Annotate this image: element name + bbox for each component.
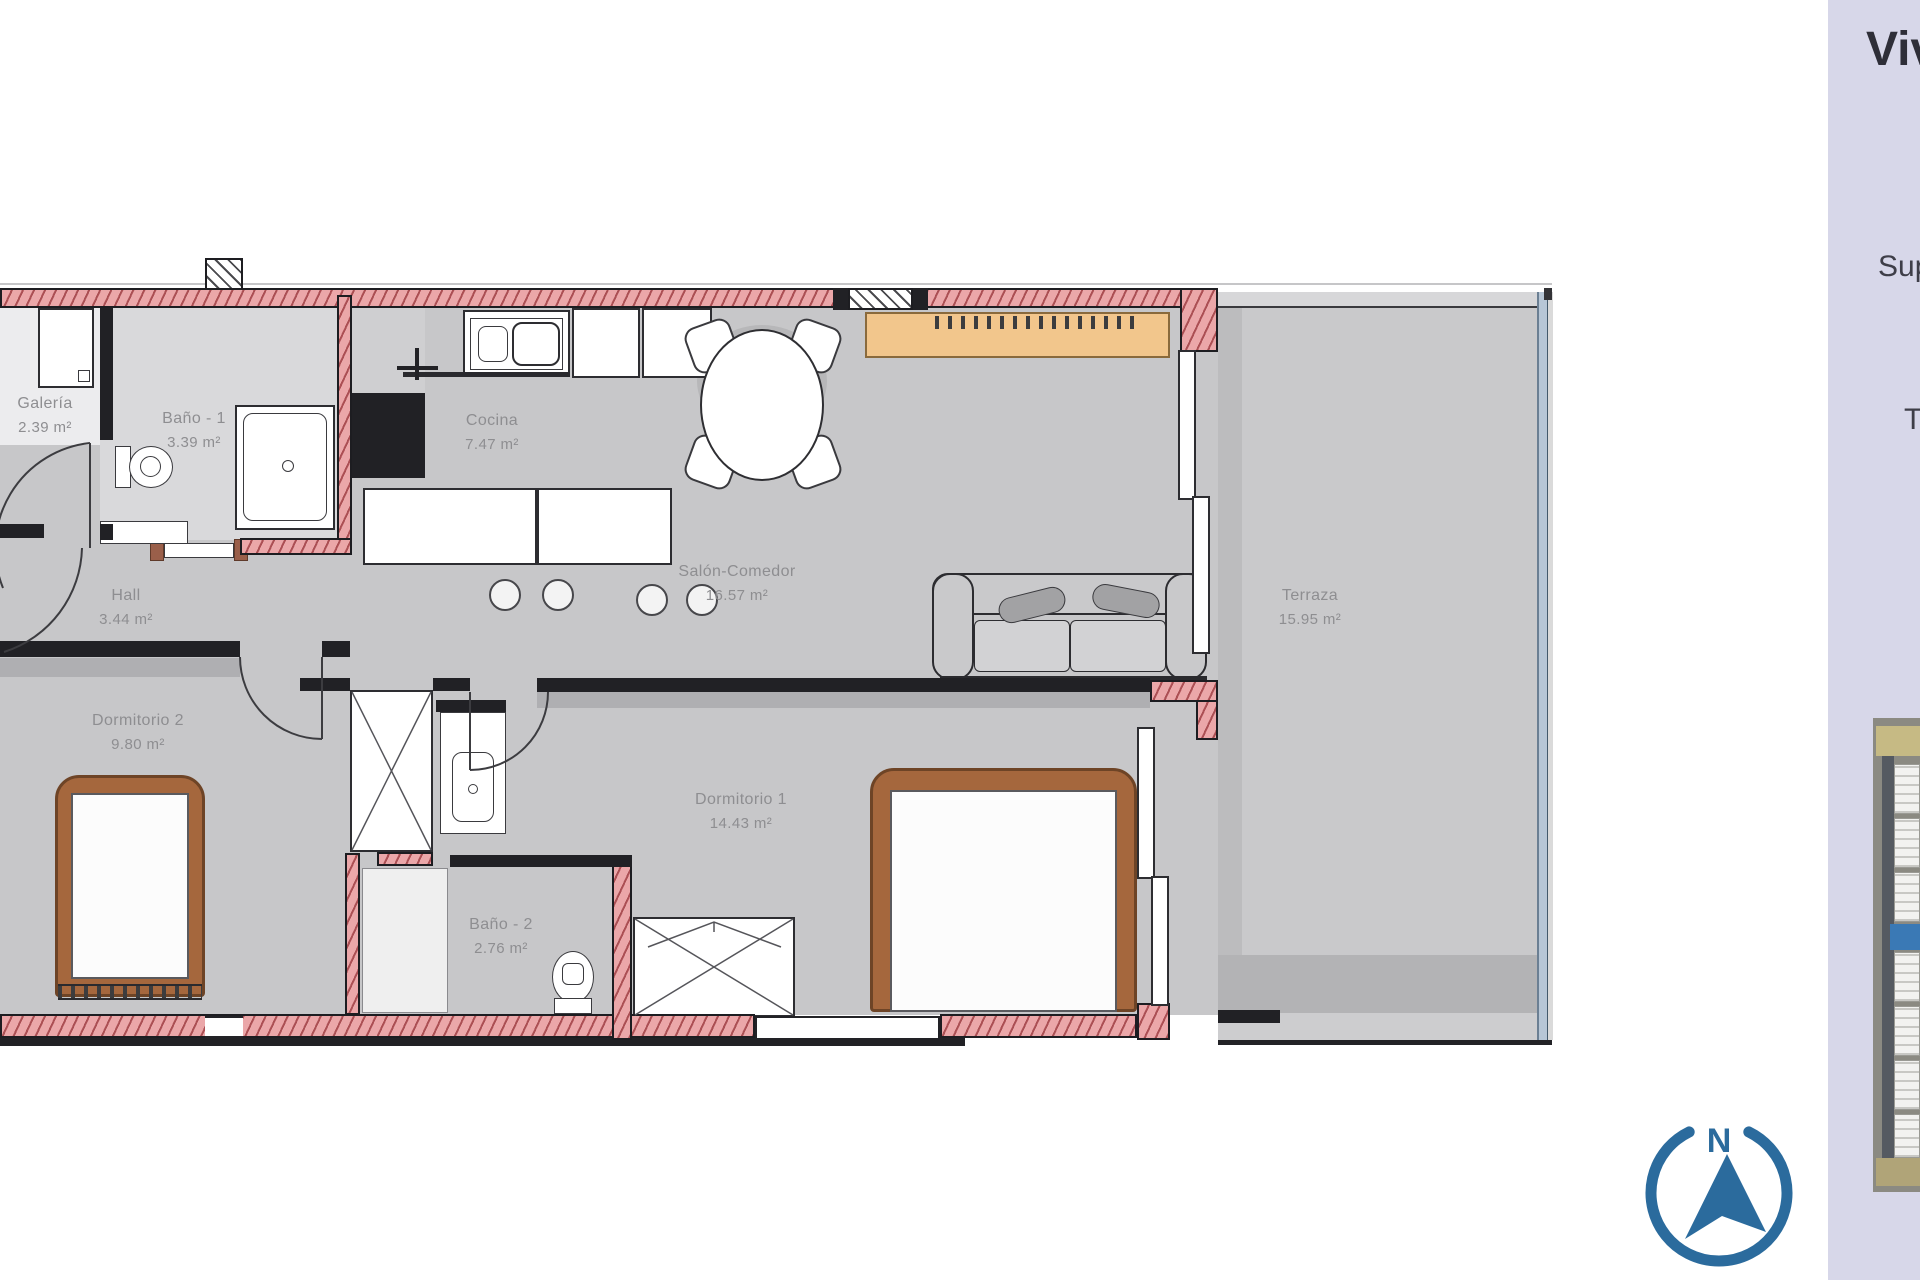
thumb-building-spine [1882, 756, 1894, 1160]
room-name: Dormitorio 2 [92, 712, 184, 729]
room-name: Salón-Comedor [678, 563, 795, 580]
sidebar-title: Viv [1866, 22, 1920, 77]
thumb-unit-5 [1894, 1006, 1920, 1056]
room-name: Terraza [1282, 587, 1338, 604]
room-label-salon: Salón-Comedor 16.57 m² [678, 560, 795, 608]
galeria-door-arc [0, 443, 90, 588]
entry-door-arc [4, 548, 82, 652]
thumb-unit-7 [1894, 1114, 1920, 1158]
room-area: 7.47 m² [465, 433, 519, 457]
plan-linework: N [0, 0, 1920, 1280]
room-name: Baño - 1 [162, 410, 226, 427]
room-name: Cocina [466, 412, 518, 429]
thumb-ground-bottom [1876, 1158, 1920, 1186]
site-plan-thumbnail [1873, 718, 1920, 1192]
room-name: Dormitorio 1 [695, 791, 787, 808]
compass-arrow [1685, 1154, 1766, 1239]
room-name: Hall [111, 587, 140, 604]
sidebar-terraza-label: T [1904, 403, 1920, 437]
room-label-dorm2: Dormitorio 2 9.80 m² [92, 709, 184, 757]
room-area: 16.57 m² [678, 584, 795, 608]
room-label-cocina: Cocina 7.47 m² [465, 409, 519, 457]
room-label-dorm1: Dormitorio 1 14.43 m² [695, 788, 787, 836]
sidebar-panel: Viv Sup T [1828, 0, 1920, 1280]
room-label-bano2: Baño - 2 2.76 m² [469, 913, 533, 961]
thumb-unit-1 [1894, 764, 1920, 814]
wardrobe-dorm1-rail [648, 922, 781, 947]
room-label-hall: Hall 3.44 m² [99, 584, 153, 632]
floor-plan-page: N Galería 2.39 m² Baño - 1 3.39 m² Cocin… [0, 0, 1920, 1280]
room-area: 2.76 m² [469, 937, 533, 961]
room-area: 3.44 m² [99, 608, 153, 632]
room-area: 2.39 m² [17, 416, 72, 440]
dorm1-door-arc [470, 692, 548, 770]
thumb-unit-4 [1894, 952, 1920, 1002]
thumb-unit-6 [1894, 1060, 1920, 1110]
room-area: 14.43 m² [695, 812, 787, 836]
compass-north-label: N [1707, 1122, 1732, 1160]
thumb-unit-2 [1894, 818, 1920, 868]
sidebar-superficie-label: Sup [1878, 250, 1920, 284]
dorm2-door-arc [240, 657, 322, 739]
room-area: 9.80 m² [92, 733, 184, 757]
room-area: 15.95 m² [1279, 608, 1341, 632]
room-name: Baño - 2 [469, 916, 533, 933]
compass-icon: N [1651, 1122, 1787, 1261]
room-label-bano1: Baño - 1 3.39 m² [162, 407, 226, 455]
room-area: 3.39 m² [162, 431, 226, 455]
thumb-ground-top [1876, 726, 1920, 756]
room-label-terraza: Terraza 15.95 m² [1279, 584, 1341, 632]
thumb-highlight-unit [1890, 924, 1920, 950]
room-name: Galería [17, 395, 72, 412]
thumb-unit-3 [1894, 872, 1920, 922]
room-label-galeria: Galería 2.39 m² [17, 392, 72, 440]
